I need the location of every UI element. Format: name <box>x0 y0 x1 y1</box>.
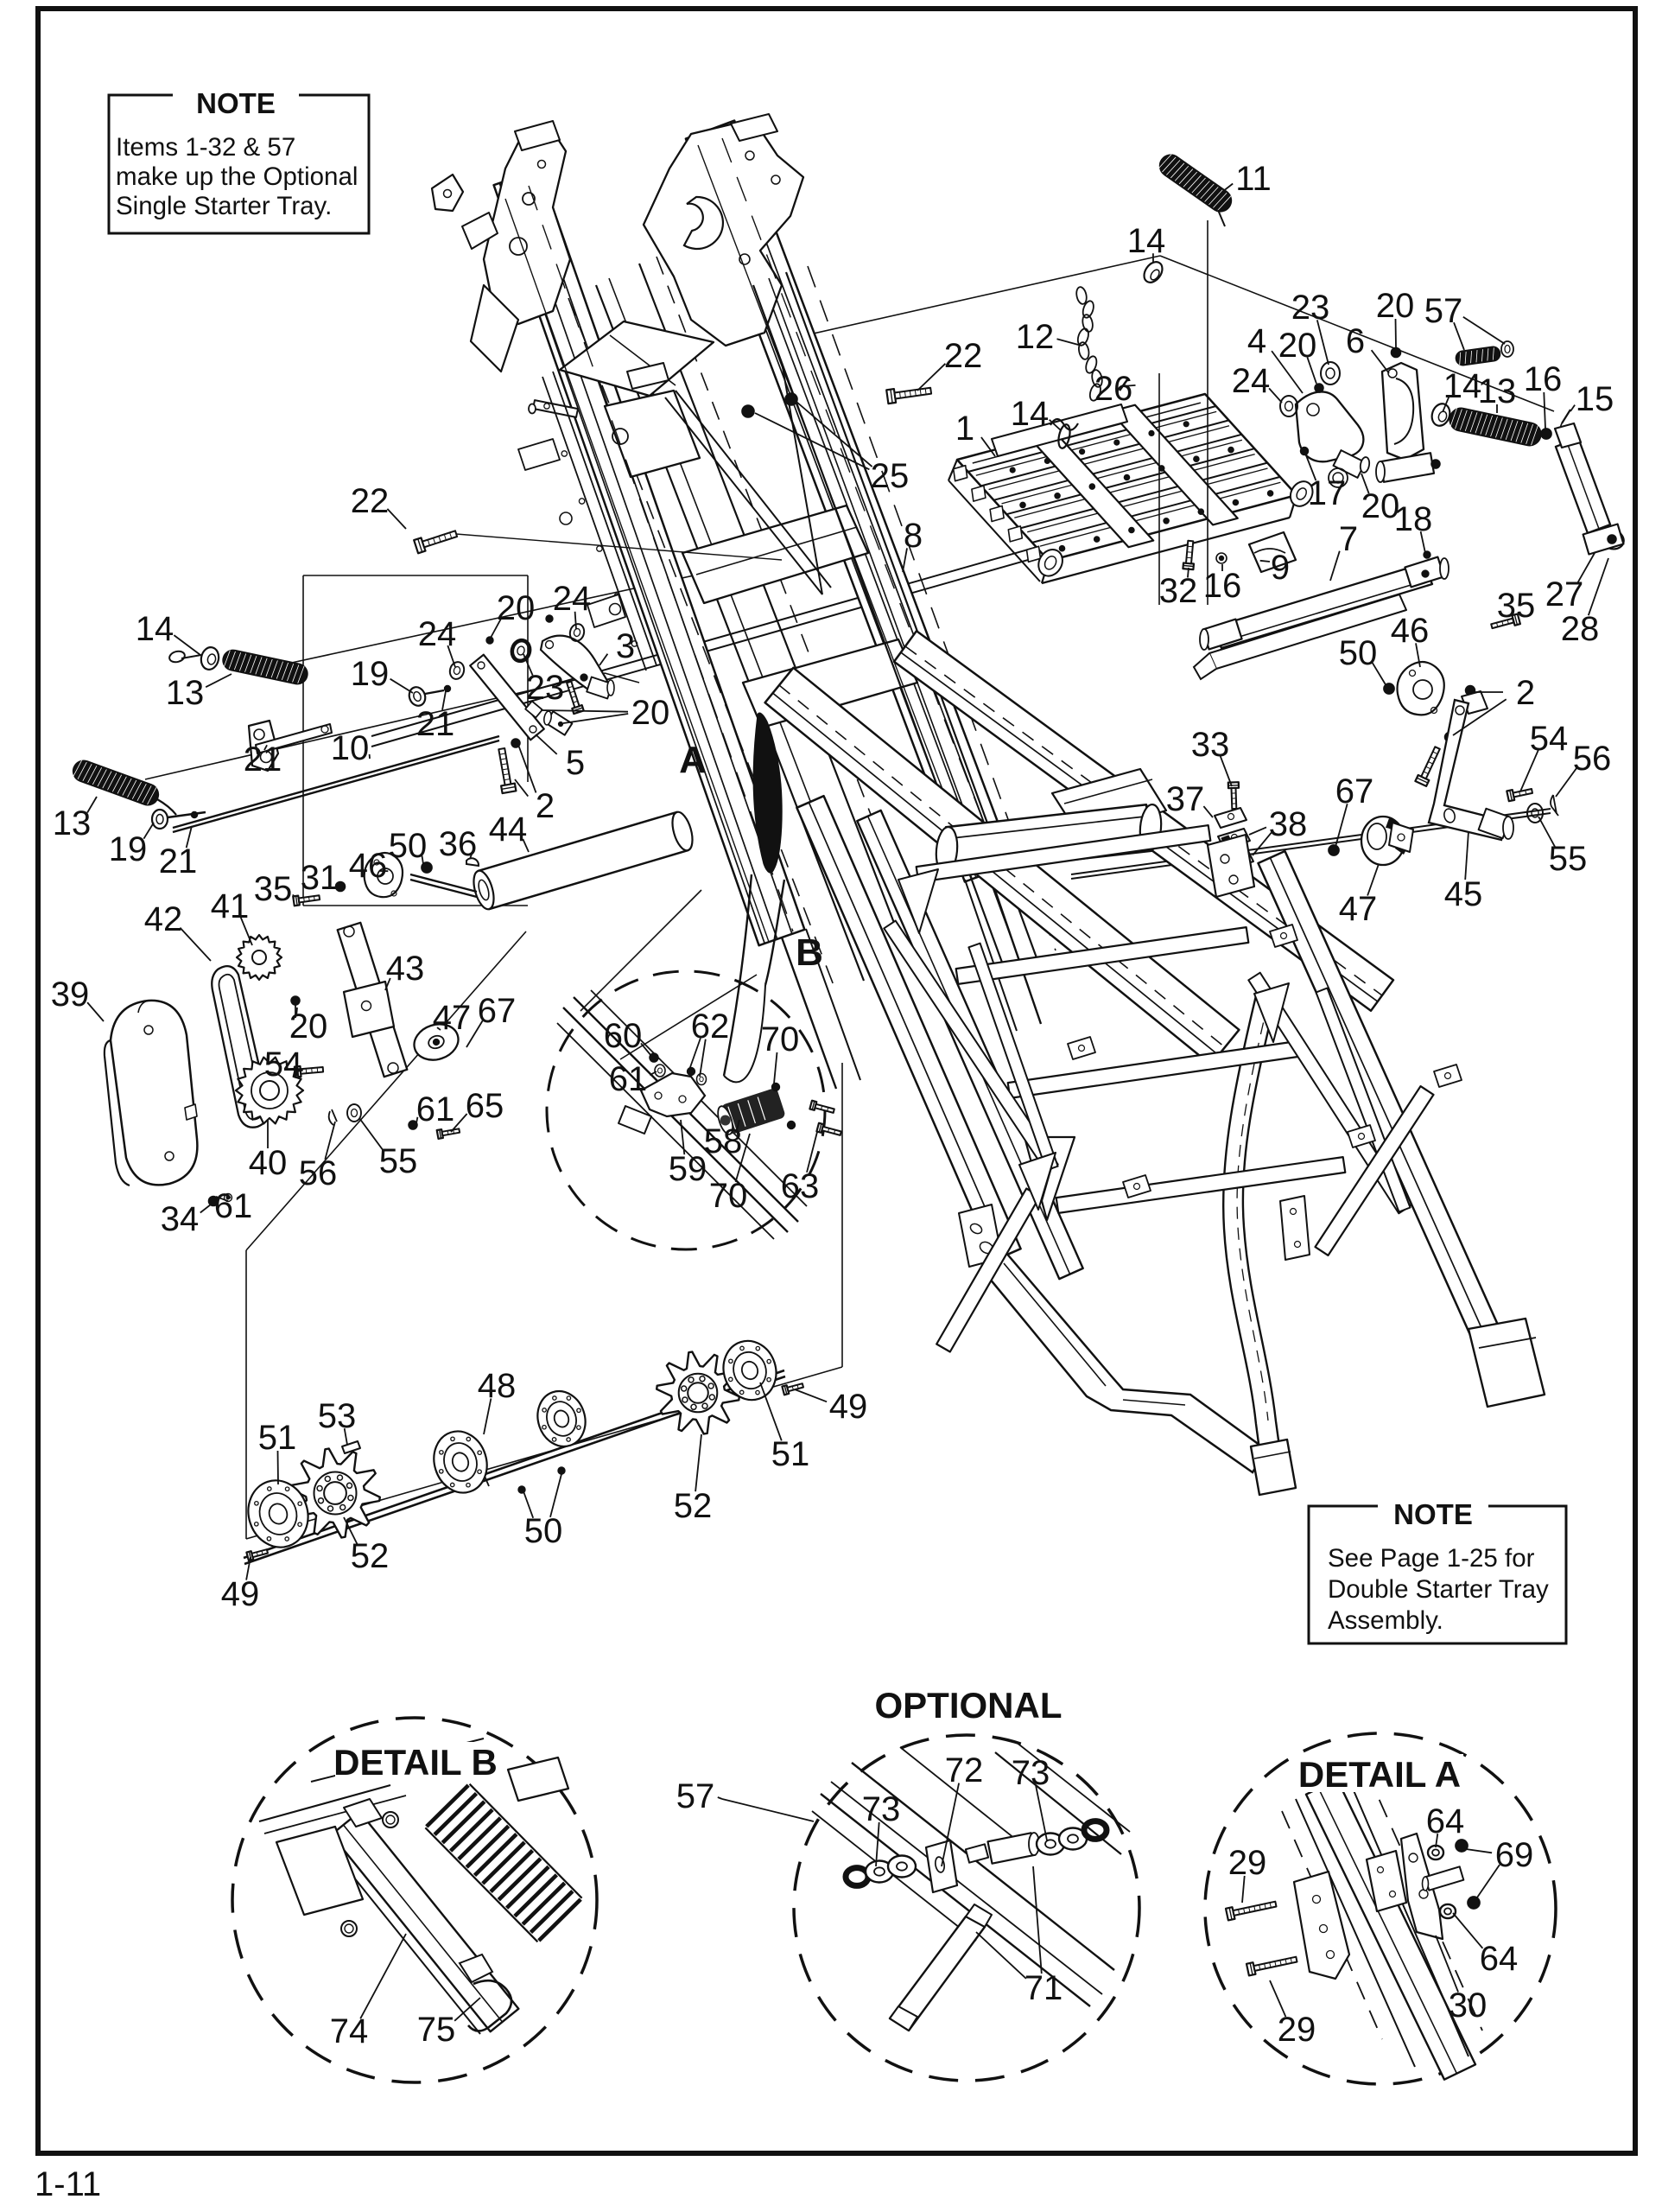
svg-text:56: 56 <box>1573 740 1612 778</box>
svg-text:7: 7 <box>1339 520 1358 558</box>
svg-text:16: 16 <box>1524 360 1563 398</box>
svg-text:9: 9 <box>1271 549 1290 587</box>
svg-text:19: 19 <box>351 655 390 693</box>
svg-text:29: 29 <box>1278 2011 1316 2049</box>
svg-text:50: 50 <box>389 827 428 865</box>
svg-text:1: 1 <box>955 410 974 448</box>
svg-text:20: 20 <box>1376 287 1415 325</box>
svg-text:43: 43 <box>386 950 425 988</box>
svg-text:67: 67 <box>1335 772 1374 810</box>
svg-text:13: 13 <box>1478 372 1517 410</box>
svg-text:36: 36 <box>439 825 478 863</box>
svg-text:64: 64 <box>1426 1802 1465 1840</box>
svg-text:48: 48 <box>478 1367 517 1405</box>
svg-text:14: 14 <box>1011 395 1050 433</box>
svg-text:32: 32 <box>1159 572 1198 610</box>
svg-text:51: 51 <box>771 1435 810 1473</box>
svg-text:57: 57 <box>676 1777 715 1815</box>
svg-text:27: 27 <box>1545 575 1584 613</box>
svg-text:make up the Optional: make up the Optional <box>116 162 358 191</box>
svg-text:2: 2 <box>1516 674 1535 712</box>
svg-text:15: 15 <box>1576 380 1614 418</box>
svg-text:5: 5 <box>566 744 585 782</box>
svg-text:14: 14 <box>1127 222 1166 260</box>
svg-text:61: 61 <box>214 1187 253 1225</box>
svg-text:62: 62 <box>691 1007 730 1046</box>
svg-text:46: 46 <box>349 847 388 885</box>
svg-text:50: 50 <box>1339 634 1378 672</box>
svg-text:42: 42 <box>144 900 183 938</box>
svg-text:17: 17 <box>1308 474 1347 512</box>
svg-text:26: 26 <box>1094 370 1133 408</box>
svg-text:24: 24 <box>1232 362 1271 400</box>
svg-text:34: 34 <box>161 1200 200 1238</box>
svg-text:21: 21 <box>416 705 455 743</box>
svg-text:DETAIL B: DETAIL B <box>333 1742 498 1783</box>
svg-text:55: 55 <box>379 1142 418 1180</box>
svg-text:64: 64 <box>1480 1940 1519 1978</box>
svg-text:31: 31 <box>301 859 339 897</box>
svg-text:33: 33 <box>1191 726 1230 764</box>
svg-text:41: 41 <box>211 887 250 925</box>
svg-text:60: 60 <box>604 1017 643 1055</box>
svg-text:35: 35 <box>1497 587 1536 625</box>
svg-text:69: 69 <box>1495 1836 1534 1874</box>
svg-text:55: 55 <box>1549 840 1588 878</box>
svg-text:20: 20 <box>497 589 536 627</box>
svg-text:A: A <box>679 739 707 781</box>
svg-text:24: 24 <box>553 580 592 618</box>
svg-text:73: 73 <box>1012 1754 1050 1792</box>
svg-text:23: 23 <box>1291 289 1330 327</box>
svg-text:47: 47 <box>433 999 472 1037</box>
svg-text:45: 45 <box>1444 875 1483 913</box>
svg-text:14: 14 <box>1443 367 1482 405</box>
svg-text:25: 25 <box>871 457 910 495</box>
svg-text:53: 53 <box>318 1397 357 1435</box>
svg-text:71: 71 <box>1024 1969 1063 2007</box>
svg-text:22: 22 <box>944 337 983 375</box>
svg-text:23: 23 <box>526 669 565 707</box>
svg-text:3: 3 <box>616 627 635 665</box>
svg-text:59: 59 <box>669 1150 707 1188</box>
svg-text:13: 13 <box>166 674 205 712</box>
svg-text:See Page 1-25 for: See Page 1-25 for <box>1328 1544 1535 1573</box>
svg-text:61: 61 <box>416 1090 455 1128</box>
svg-text:Double Starter Tray: Double Starter Tray <box>1328 1575 1549 1604</box>
svg-text:12: 12 <box>1016 318 1055 356</box>
svg-text:50: 50 <box>524 1512 563 1550</box>
svg-text:4: 4 <box>1247 322 1266 360</box>
svg-text:44: 44 <box>489 810 528 849</box>
svg-text:Assembly.: Assembly. <box>1328 1606 1443 1635</box>
svg-text:75: 75 <box>417 2011 456 2049</box>
svg-text:56: 56 <box>299 1154 338 1192</box>
svg-text:46: 46 <box>1391 612 1430 650</box>
svg-text:13: 13 <box>53 804 92 842</box>
svg-text:29: 29 <box>1228 1844 1267 1882</box>
svg-text:74: 74 <box>330 2012 369 2050</box>
svg-text:51: 51 <box>258 1419 297 1457</box>
svg-text:47: 47 <box>1339 890 1378 928</box>
svg-text:30: 30 <box>1449 1986 1488 2024</box>
svg-text:37: 37 <box>1166 780 1205 818</box>
svg-text:OPTIONAL: OPTIONAL <box>875 1685 1063 1726</box>
svg-text:49: 49 <box>221 1575 260 1613</box>
svg-text:54: 54 <box>264 1046 303 1084</box>
svg-text:40: 40 <box>249 1144 288 1182</box>
svg-text:21: 21 <box>159 842 198 880</box>
svg-text:8: 8 <box>904 517 923 555</box>
svg-text:65: 65 <box>466 1087 504 1125</box>
svg-text:B: B <box>796 931 823 974</box>
svg-text:28: 28 <box>1561 610 1600 648</box>
svg-text:35: 35 <box>254 870 293 908</box>
svg-text:24: 24 <box>418 615 457 653</box>
svg-text:52: 52 <box>674 1487 713 1525</box>
svg-text:63: 63 <box>781 1167 820 1205</box>
svg-text:20: 20 <box>631 694 670 732</box>
svg-text:20: 20 <box>1278 327 1317 365</box>
svg-text:NOTE: NOTE <box>1393 1498 1473 1530</box>
svg-text:Items 1-32 & 57: Items 1-32 & 57 <box>116 133 295 162</box>
svg-text:39: 39 <box>51 976 90 1014</box>
svg-text:11: 11 <box>1235 160 1272 198</box>
svg-text:DETAIL A: DETAIL A <box>1298 1754 1461 1795</box>
svg-text:70: 70 <box>709 1177 748 1215</box>
svg-text:54: 54 <box>1530 720 1569 758</box>
svg-text:58: 58 <box>704 1122 743 1160</box>
svg-text:Single Starter Tray.: Single Starter Tray. <box>116 192 332 220</box>
svg-text:1-11: 1-11 <box>35 2165 101 2203</box>
svg-text:14: 14 <box>136 610 174 648</box>
svg-text:20: 20 <box>289 1007 328 1046</box>
svg-text:57: 57 <box>1424 292 1463 330</box>
svg-text:61: 61 <box>609 1060 648 1098</box>
svg-text:72: 72 <box>945 1751 984 1789</box>
svg-text:38: 38 <box>1269 805 1308 843</box>
svg-text:70: 70 <box>761 1020 800 1058</box>
svg-text:49: 49 <box>829 1388 868 1426</box>
svg-text:10: 10 <box>331 729 370 767</box>
svg-text:2: 2 <box>536 787 555 825</box>
svg-text:21: 21 <box>244 741 282 779</box>
svg-text:16: 16 <box>1203 567 1242 605</box>
svg-text:NOTE: NOTE <box>196 87 276 119</box>
svg-text:67: 67 <box>478 992 517 1030</box>
svg-text:52: 52 <box>351 1537 390 1575</box>
svg-text:18: 18 <box>1394 500 1433 538</box>
svg-text:73: 73 <box>862 1790 901 1828</box>
svg-text:6: 6 <box>1346 322 1365 360</box>
svg-text:19: 19 <box>109 830 148 868</box>
svg-text:20: 20 <box>1361 487 1400 525</box>
svg-text:22: 22 <box>351 482 390 520</box>
